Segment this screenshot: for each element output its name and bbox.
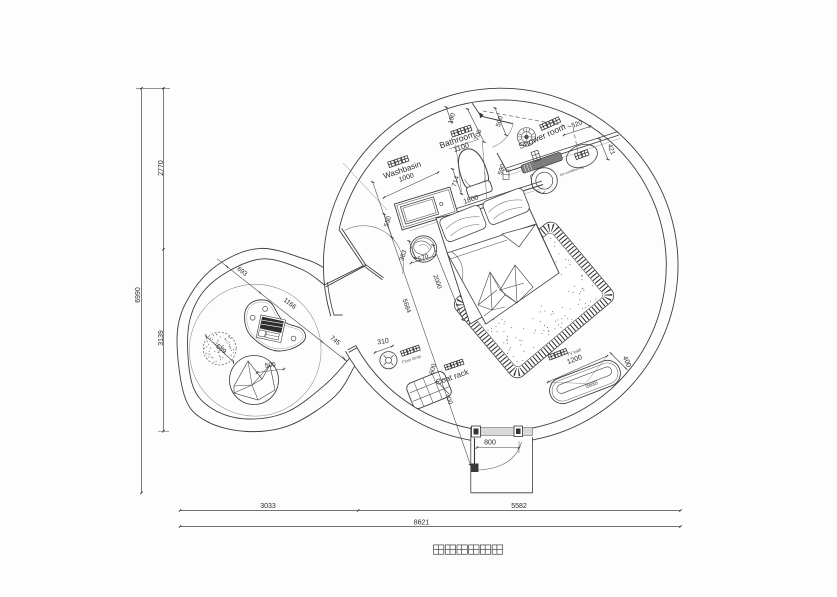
svg-text:5582: 5582	[511, 503, 527, 510]
svg-text:8621: 8621	[414, 520, 430, 527]
svg-text:800: 800	[484, 440, 496, 447]
svg-text:6990: 6990	[135, 287, 142, 303]
svg-text:3033: 3033	[260, 503, 276, 510]
svg-text:3139: 3139	[158, 330, 165, 346]
svg-text:2770: 2770	[158, 160, 165, 176]
